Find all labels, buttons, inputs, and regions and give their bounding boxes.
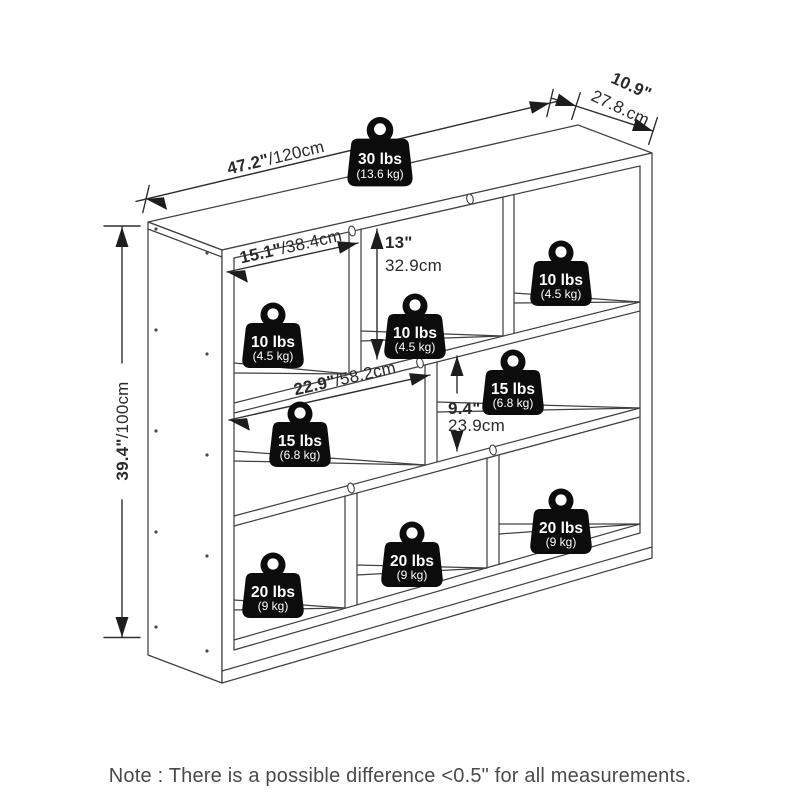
product-dimension-page: 47.2"/120cm 10.9" 27.8.cm 39.4"/100cm <box>0 0 800 800</box>
svg-text:(4.5 kg): (4.5 kg) <box>253 349 294 363</box>
svg-text:(6.8 kg): (6.8 kg) <box>493 396 534 410</box>
dimension-overall-height: 39.4"/100cm <box>104 226 140 638</box>
svg-text:(4.5 kg): (4.5 kg) <box>541 287 582 301</box>
bookcase-dimension-diagram: 47.2"/120cm 10.9" 27.8.cm 39.4"/100cm <box>0 0 800 800</box>
left-side-panel <box>148 222 222 683</box>
svg-text:30 lbs: 30 lbs <box>358 151 402 168</box>
middle-cube-height-label-metric: 23.9cm <box>448 416 505 435</box>
measurement-note: Note : There is a possible difference <0… <box>109 765 691 787</box>
cube-height-label-inches: 13" <box>385 233 413 252</box>
width-label: 47.2"/120cm <box>225 137 326 178</box>
cube-height-label-metric: 32.9cm <box>385 256 442 275</box>
svg-text:(9 kg): (9 kg) <box>258 599 289 613</box>
svg-text:(6.8 kg): (6.8 kg) <box>280 448 321 462</box>
svg-text:(13.6 kg): (13.6 kg) <box>356 167 403 181</box>
svg-text:(9 kg): (9 kg) <box>397 568 428 582</box>
height-label: 39.4"/100cm <box>113 381 132 480</box>
bookcase-drawing <box>148 125 652 683</box>
svg-text:(4.5 kg): (4.5 kg) <box>395 340 436 354</box>
svg-text:(9 kg): (9 kg) <box>546 535 577 549</box>
weight-badge-top-surface: 30 lbs (13.6 kg) <box>347 117 412 186</box>
